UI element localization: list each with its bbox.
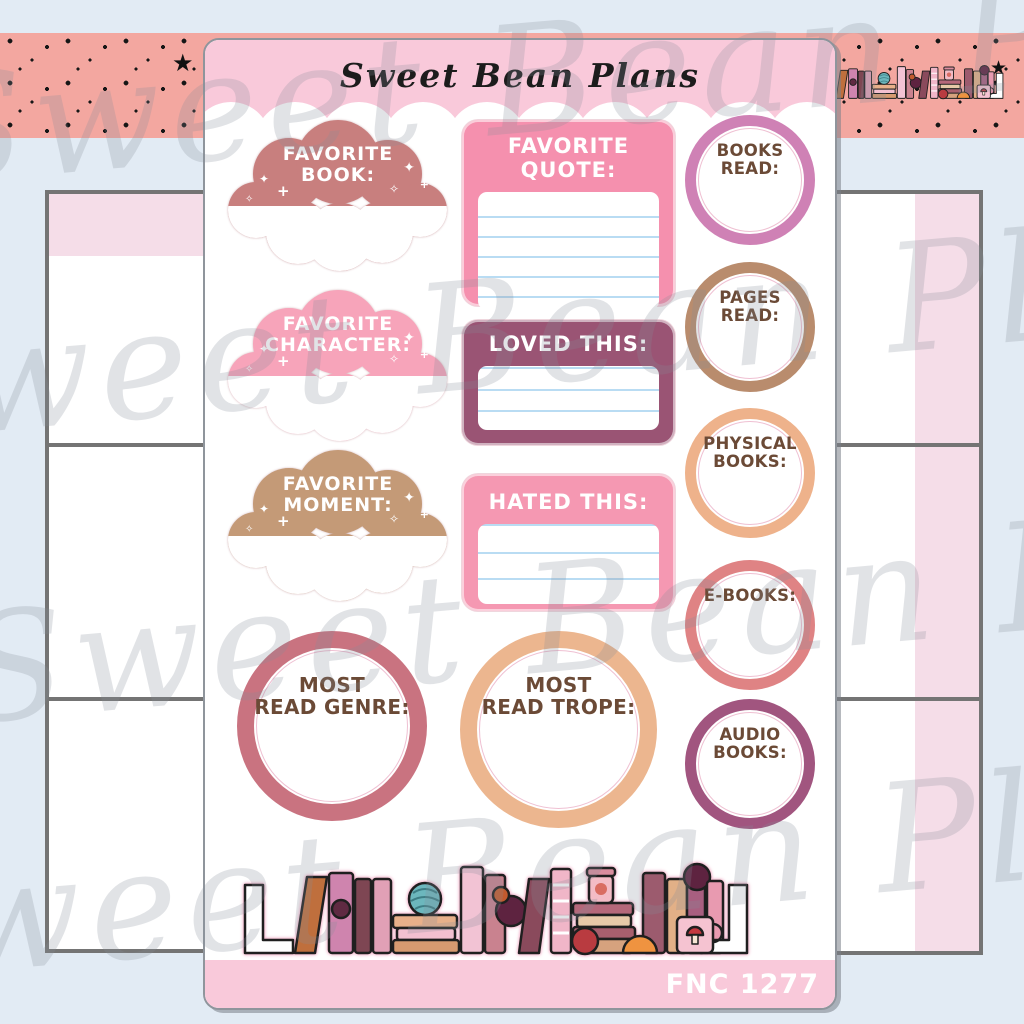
sticker-label: BOOKS READ: [696,142,804,178]
sticker-label: HATED THIS: [462,490,675,514]
sticker-sheet: Sweet Bean Plans FAVORITE BOOK: [203,38,837,1010]
sticker-most-read-genre: MOST READ GENRE: [237,631,427,821]
banner-books-illustration-left [0,37,212,133]
sparkle-icon: ✧ [245,524,253,535]
sparkle-icon: ✧ [245,364,253,375]
sticker-label: E-BOOKS: [696,587,804,605]
sparkle-icon: ✦ [259,172,269,186]
sticker-favorite-book: FAVORITE BOOK: ✦ + ✧ ✦ + ✧ [225,120,451,285]
ruled-note-area [478,524,659,604]
sticker-hated-this: HATED THIS: [462,474,675,611]
sticker-label: MOST READ GENRE: [254,674,410,718]
product-image: ★ ★ Sweet Bean Plans [0,0,1024,1024]
sheet-footer: FNC 1277 [205,960,835,1008]
bookshelf-illustration [235,850,755,964]
sparkle-icon: ✦ [403,490,415,506]
page-divider [49,697,210,701]
ruled-note-area [478,192,659,310]
sparkle-icon: ✧ [245,194,253,205]
sticker-favorite-moment: FAVORITE MOMENT: ✦ + ✧ ✦ + ✧ [225,450,451,615]
sparkle-icon: + [420,508,429,521]
sticker-label: LOVED THIS: [462,332,675,356]
sticker-favorite-character: FAVORITE CHARACTER: ✦ + ✧ ✦ + ✧ [225,290,451,455]
sticker-favorite-quote: FAVORITE QUOTE: [462,120,675,306]
sparkle-icon: ✦ [259,502,269,516]
sparkle-icon: + [420,178,429,191]
sparkle-icon: + [277,512,290,530]
sparkle-icon: + [277,182,290,200]
background-planner-page-right [833,190,983,955]
page-sidebar-strip [915,194,979,951]
banner-books-illustration-right [832,37,1024,133]
sku-code: FNC 1277 [666,969,819,1000]
sticker-books-read: BOOKS READ: [685,115,815,245]
background-planner-page-left [45,190,210,953]
sticker-label: AUDIO BOOKS: [696,726,804,762]
page-header-strip [49,194,210,256]
sticker-e-books: E-BOOKS: [685,560,815,690]
sparkle-icon: ✦ [259,342,269,356]
sticker-label: MOST READ TROPE: [477,674,640,718]
sticker-label: PAGES READ: [696,289,804,325]
sticker-most-read-trope: MOST READ TROPE: [460,631,657,828]
sparkle-icon: ✦ [403,160,415,176]
sticker-physical-books: PHYSICAL BOOKS: [685,408,815,538]
sticker-pages-read: PAGES READ: [685,262,815,392]
sparkle-icon: + [277,352,290,370]
sparkle-icon: ✧ [389,182,399,196]
sparkle-icon: ✦ [403,330,415,346]
sparkle-icon: + [420,348,429,361]
sparkle-icon: ✧ [389,352,399,366]
sticker-label: FAVORITE QUOTE: [462,134,675,182]
brand-title: Sweet Bean Plans [205,56,835,95]
sticker-label: PHYSICAL BOOKS: [696,435,804,471]
sticker-loved-this: LOVED THIS: [462,320,675,445]
page-divider [837,697,979,701]
page-divider [837,443,979,447]
sparkle-icon: ✧ [389,512,399,526]
ruled-note-area [478,366,659,430]
sticker-audio-books: AUDIO BOOKS: [685,699,815,829]
page-divider [49,443,210,447]
